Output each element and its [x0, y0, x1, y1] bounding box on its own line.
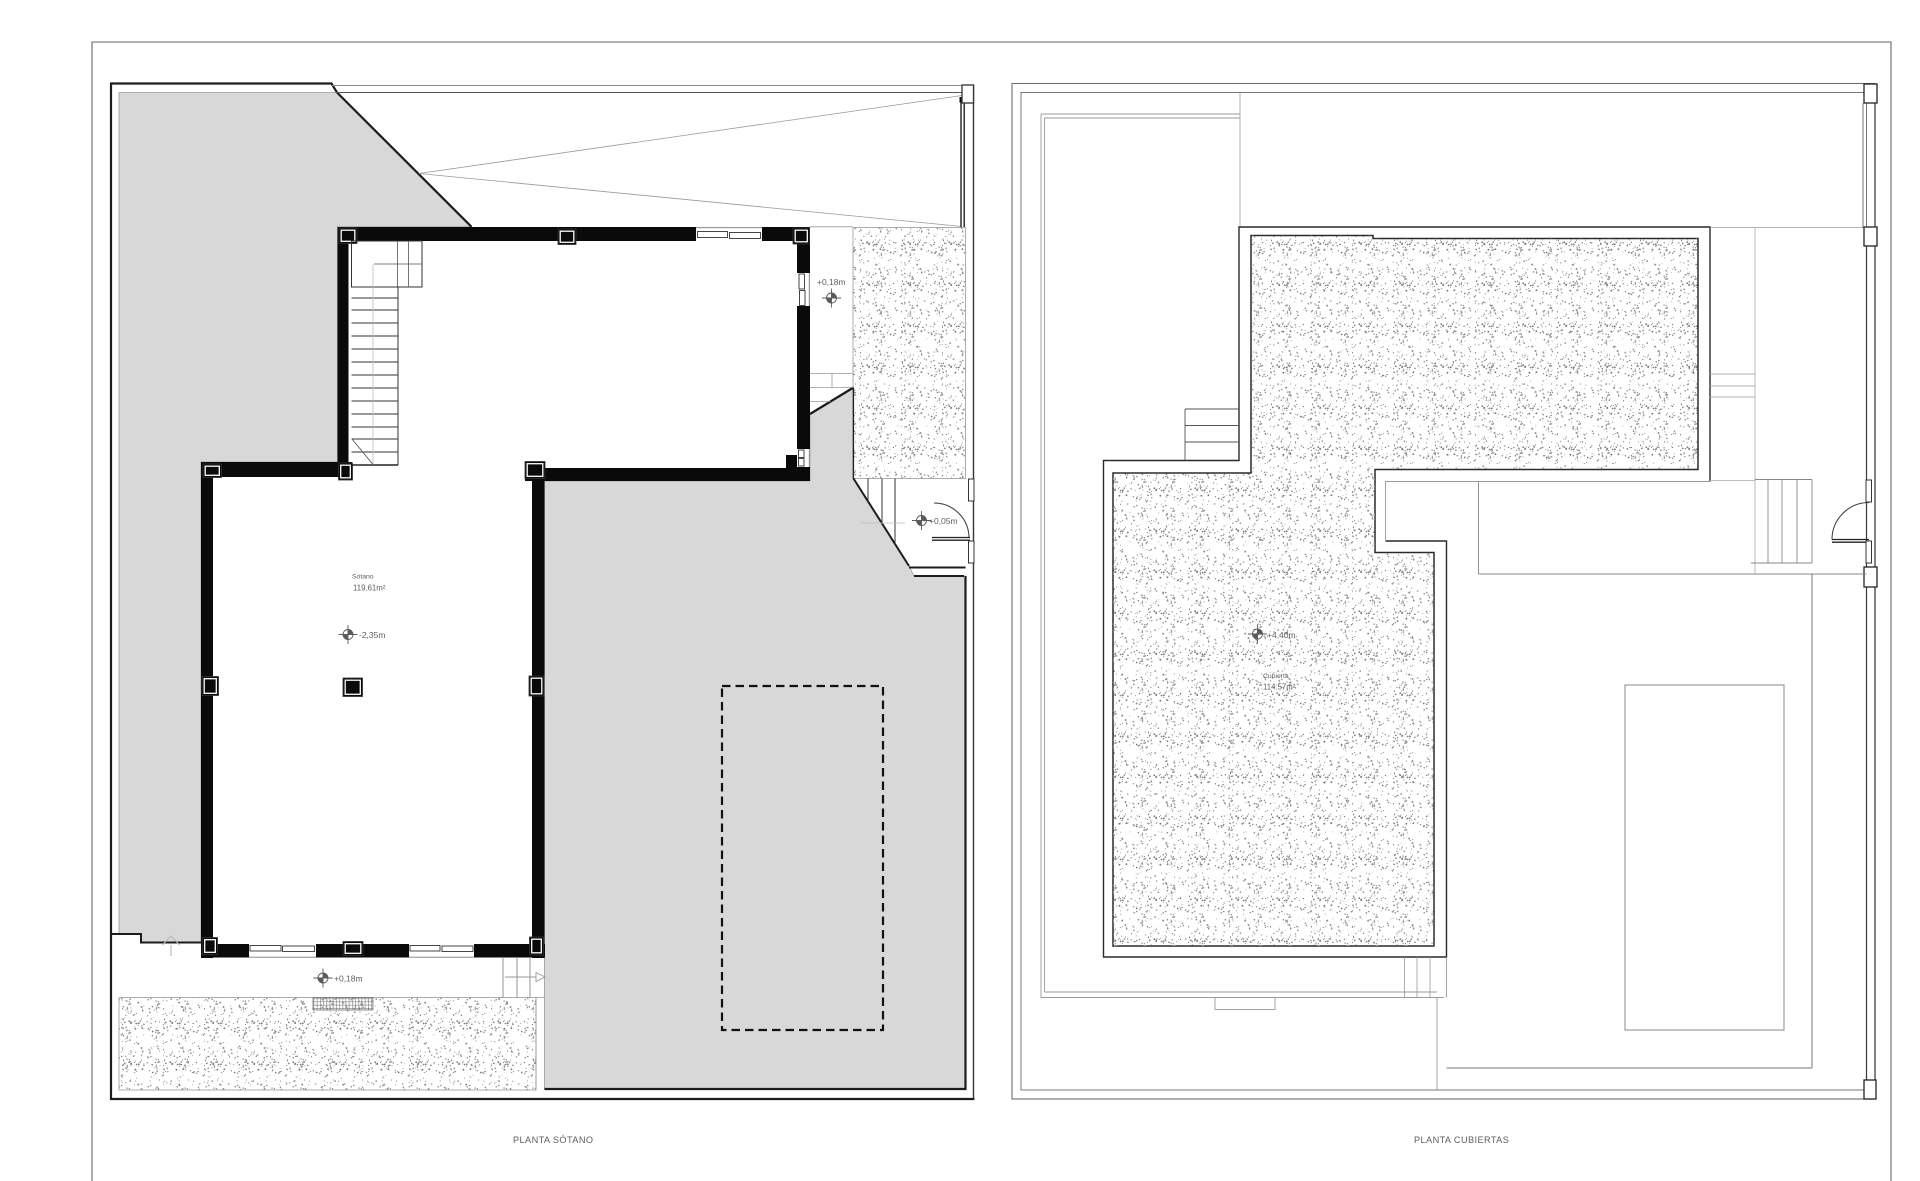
svg-text:+0,18m: +0,18m [334, 974, 363, 984]
svg-text:Cubierta: Cubierta [1263, 673, 1289, 680]
svg-text:-2,35m: -2,35m [359, 630, 385, 640]
svg-text:PLANTA SÓTANO: PLANTA SÓTANO [513, 1135, 593, 1145]
svg-text:PLANTA CUBIERTAS: PLANTA CUBIERTAS [1414, 1135, 1509, 1145]
svg-text:119.61m²: 119.61m² [353, 584, 386, 593]
svg-text:Sótano: Sótano [352, 574, 374, 581]
svg-text:+0,05m: +0,05m [929, 516, 958, 526]
svg-text:+0,18m: +0,18m [817, 277, 846, 287]
svg-text:+4,40m: +4,40m [1267, 630, 1296, 640]
svg-text:114.57m²: 114.57m² [1263, 683, 1296, 692]
